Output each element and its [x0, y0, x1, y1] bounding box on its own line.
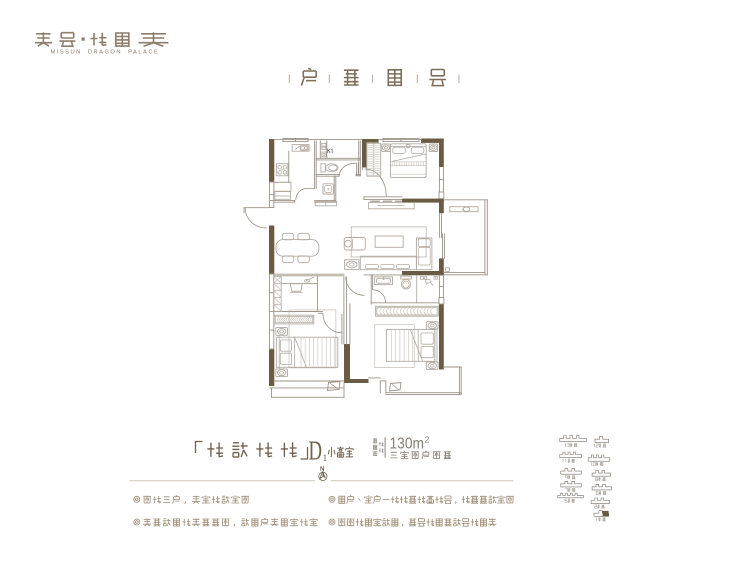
svg-text:1: 1 — [323, 454, 328, 464]
svg-text:130m: 130m — [390, 435, 425, 452]
svg-text:2: 2 — [425, 436, 430, 445]
svg-text:D: D — [309, 436, 323, 466]
